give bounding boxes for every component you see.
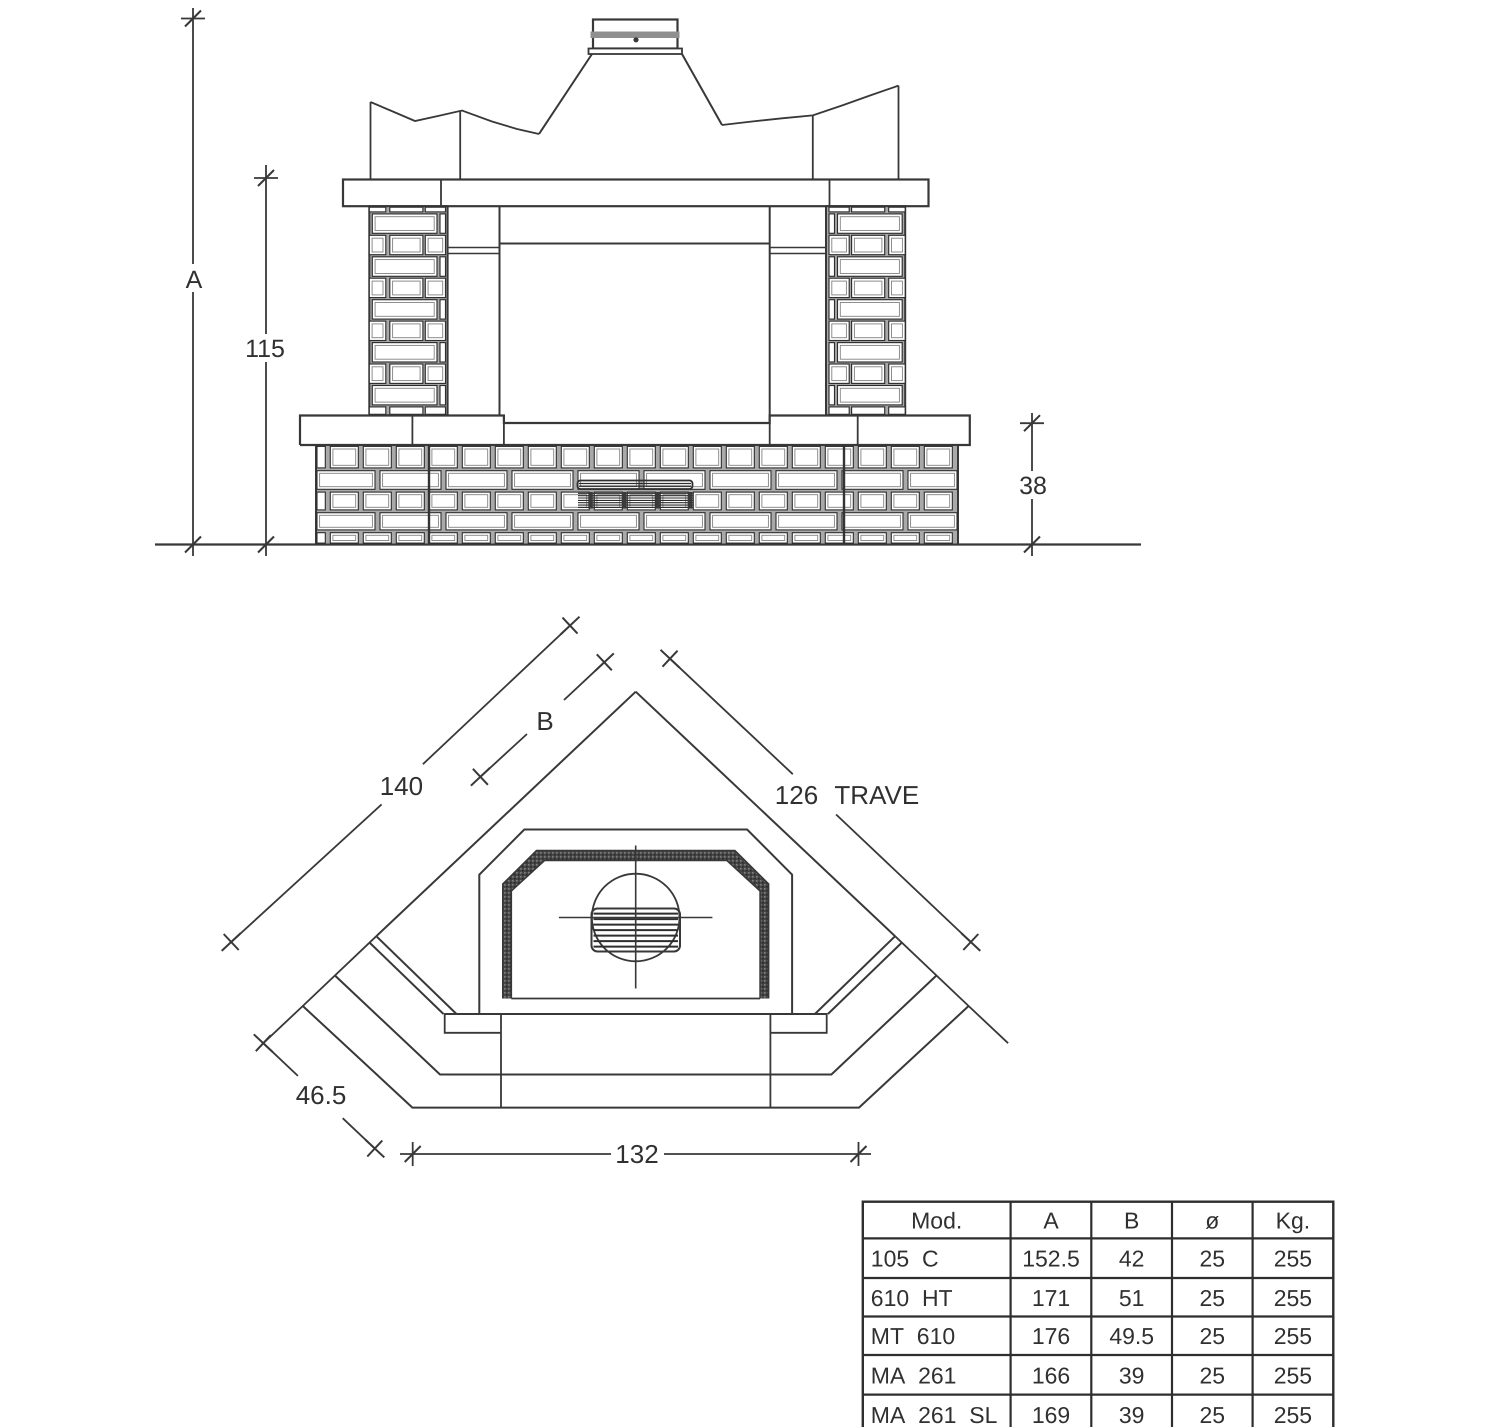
svg-text:49.5: 49.5 (1109, 1323, 1154, 1349)
svg-text:Kg.: Kg. (1276, 1208, 1311, 1234)
svg-text:TRAVE: TRAVE (834, 780, 919, 810)
svg-text:166: 166 (1032, 1362, 1070, 1388)
svg-text:255: 255 (1274, 1362, 1312, 1388)
svg-text:25: 25 (1200, 1362, 1226, 1388)
svg-text:39: 39 (1119, 1362, 1145, 1388)
svg-text:B: B (536, 706, 553, 736)
svg-text:152.5: 152.5 (1022, 1246, 1080, 1272)
svg-text:610 HT: 610 HT (871, 1285, 953, 1311)
svg-text:255: 255 (1274, 1285, 1312, 1311)
svg-text:255: 255 (1274, 1402, 1312, 1427)
svg-text:255: 255 (1274, 1323, 1312, 1349)
svg-text:ø: ø (1205, 1208, 1219, 1234)
svg-text:39: 39 (1119, 1402, 1145, 1427)
svg-text:46.5: 46.5 (296, 1080, 347, 1110)
svg-text:51: 51 (1119, 1285, 1145, 1311)
svg-text:176: 176 (1032, 1323, 1070, 1349)
svg-text:25: 25 (1200, 1323, 1226, 1349)
svg-text:132: 132 (615, 1139, 658, 1169)
svg-text:255: 255 (1274, 1246, 1312, 1272)
svg-text:105 C: 105 C (871, 1246, 939, 1272)
svg-text:MA 261 SL: MA 261 SL (871, 1402, 998, 1427)
svg-text:38: 38 (1019, 472, 1047, 500)
svg-text:A: A (1043, 1208, 1059, 1234)
svg-text:25: 25 (1200, 1246, 1226, 1272)
svg-text:25: 25 (1200, 1402, 1226, 1427)
svg-text:MT 610: MT 610 (871, 1323, 955, 1349)
svg-text:140: 140 (380, 771, 423, 801)
svg-text:115: 115 (245, 335, 285, 363)
svg-text:25: 25 (1200, 1285, 1226, 1311)
svg-text:MA 261: MA 261 (871, 1362, 957, 1388)
svg-text:169: 169 (1032, 1402, 1070, 1427)
svg-text:Mod.: Mod. (911, 1208, 962, 1234)
svg-text:B: B (1124, 1208, 1139, 1234)
svg-text:42: 42 (1119, 1246, 1145, 1272)
svg-text:171: 171 (1032, 1285, 1070, 1311)
svg-text:126: 126 (775, 780, 818, 810)
svg-text:A: A (186, 266, 203, 294)
